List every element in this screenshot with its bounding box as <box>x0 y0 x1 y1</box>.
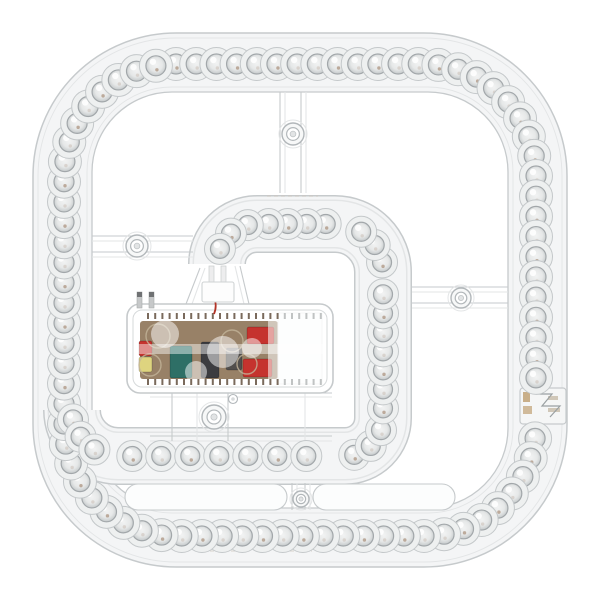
screw-hole <box>279 120 307 148</box>
outer-led-ring <box>33 33 567 567</box>
led-lens <box>146 441 177 472</box>
screw-hole <box>123 232 151 260</box>
led-lens <box>204 233 235 264</box>
led-lens <box>117 441 148 472</box>
wire-connector <box>202 282 234 302</box>
outer-band <box>33 33 567 567</box>
led-lens <box>139 49 172 82</box>
connector-pin <box>221 266 226 282</box>
led-module-photo <box>0 0 600 600</box>
led-lens <box>79 434 110 465</box>
connector-pin <box>209 266 214 282</box>
driver-box <box>127 266 333 393</box>
led-lens <box>291 441 322 472</box>
led-lens <box>175 441 206 472</box>
alignment-hole <box>229 395 238 404</box>
screw-hole <box>448 285 474 311</box>
led-lens <box>520 361 553 394</box>
led-lens <box>233 441 264 472</box>
led-lens <box>368 279 399 310</box>
strip-solder-joint <box>520 388 566 424</box>
led-lens <box>204 441 235 472</box>
mounting-slot <box>313 484 455 510</box>
product-photo <box>0 0 600 600</box>
led-lens <box>262 441 293 472</box>
led-lens <box>346 216 377 247</box>
screw-hole <box>199 402 229 432</box>
mounting-slot <box>125 484 287 510</box>
screw-hole <box>290 488 312 510</box>
